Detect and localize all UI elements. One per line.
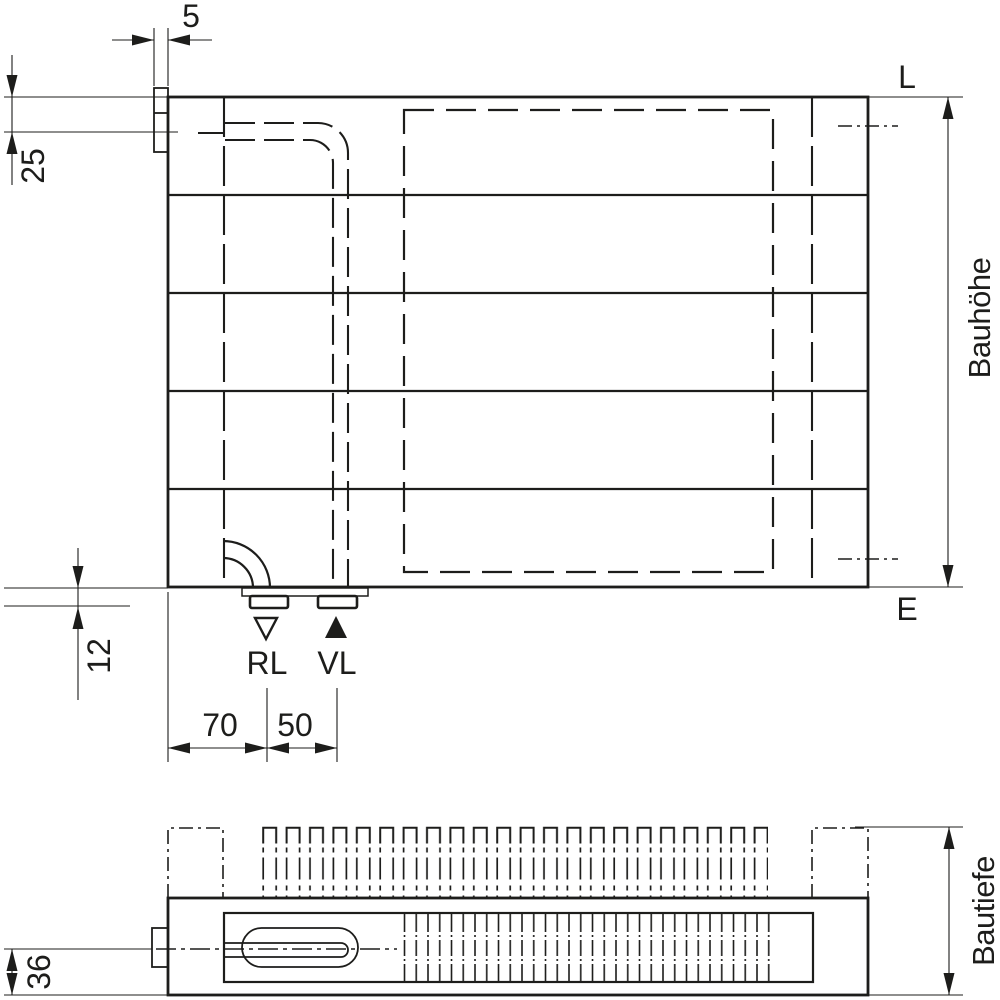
return-flow-icon — [255, 618, 277, 639]
return-elbow-inner — [223, 558, 253, 588]
plan-view: 36 Bautiefe — [4, 827, 1000, 996]
radiator-outline — [168, 97, 868, 587]
dim-bottom-connection-value: 12 — [81, 638, 117, 674]
dim-pipe-axis-value: 36 — [21, 954, 57, 990]
convector-fins — [262, 827, 768, 899]
dimension-bottom-connection: 12 — [4, 548, 168, 700]
dimension-top-connection: 25 — [4, 55, 178, 185]
dim-top-connection-value: 25 — [15, 148, 51, 184]
marker-bottom-right: E — [896, 591, 917, 627]
dimension-bauhoehe: Bauhöhe L E — [868, 59, 997, 627]
dim-return-offset-value: 70 — [202, 707, 238, 743]
dim-supply-spacing-value: 50 — [277, 707, 313, 743]
bracket-outline-right — [812, 828, 868, 898]
return-nipple — [250, 596, 288, 608]
hidden-plate-outline — [404, 110, 773, 572]
bracket-outline-left — [168, 828, 223, 898]
height-dimension-label: Bauhöhe — [962, 258, 997, 379]
supply-pipe-inner — [225, 140, 333, 587]
mounting-tab-top — [154, 88, 168, 152]
radiator-technical-drawing: RL VL 5 25 12 7 — [0, 0, 1000, 1000]
hidden-fins — [404, 913, 771, 982]
front-view: RL VL 5 25 12 7 — [4, 0, 997, 762]
return-label: RL — [247, 645, 288, 681]
water-channel — [242, 928, 358, 967]
panel-divider-lines — [168, 195, 868, 489]
depth-dimension-label: Bautiefe — [966, 856, 1000, 966]
dimension-tab-width: 5 — [112, 0, 212, 86]
supply-pipe-outer — [225, 123, 348, 587]
dim-tab-width-value: 5 — [182, 0, 200, 34]
return-elbow-outer — [223, 541, 270, 588]
supply-flow-icon — [325, 616, 347, 638]
supply-label: VL — [317, 645, 356, 681]
drawing-canvas: RL VL 5 25 12 7 — [0, 0, 1000, 1000]
supply-nipple — [318, 596, 357, 608]
dimension-bautiefe: Bautiefe — [855, 827, 1000, 995]
marker-top-right: L — [898, 59, 916, 95]
mounting-tab-side — [152, 928, 168, 967]
dimension-pipe-axis: 36 — [4, 949, 168, 995]
